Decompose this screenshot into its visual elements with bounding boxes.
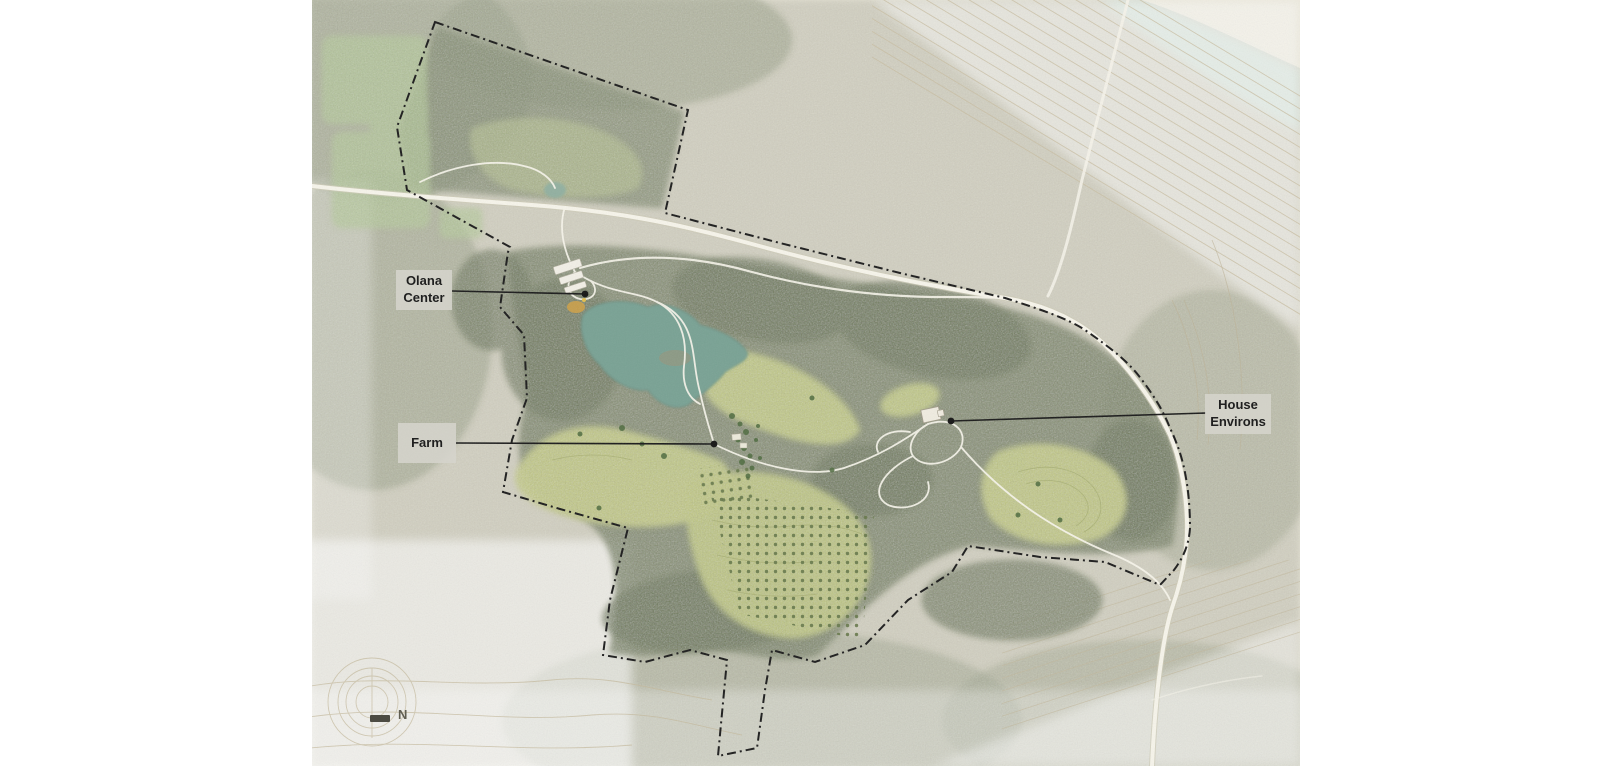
north-bar-icon bbox=[370, 715, 390, 722]
north-indicator: N bbox=[368, 704, 438, 730]
site-plan-map: Olana Center Farm House Environs N bbox=[312, 0, 1300, 766]
photo-grain bbox=[312, 0, 1300, 766]
label-olana-center: Olana Center bbox=[396, 270, 452, 310]
north-label: N bbox=[398, 707, 407, 722]
label-house-environs: House Environs bbox=[1205, 394, 1271, 434]
label-farm: Farm bbox=[398, 423, 456, 463]
map-artwork bbox=[312, 0, 1300, 766]
page: Olana Center Farm House Environs N bbox=[0, 0, 1600, 780]
